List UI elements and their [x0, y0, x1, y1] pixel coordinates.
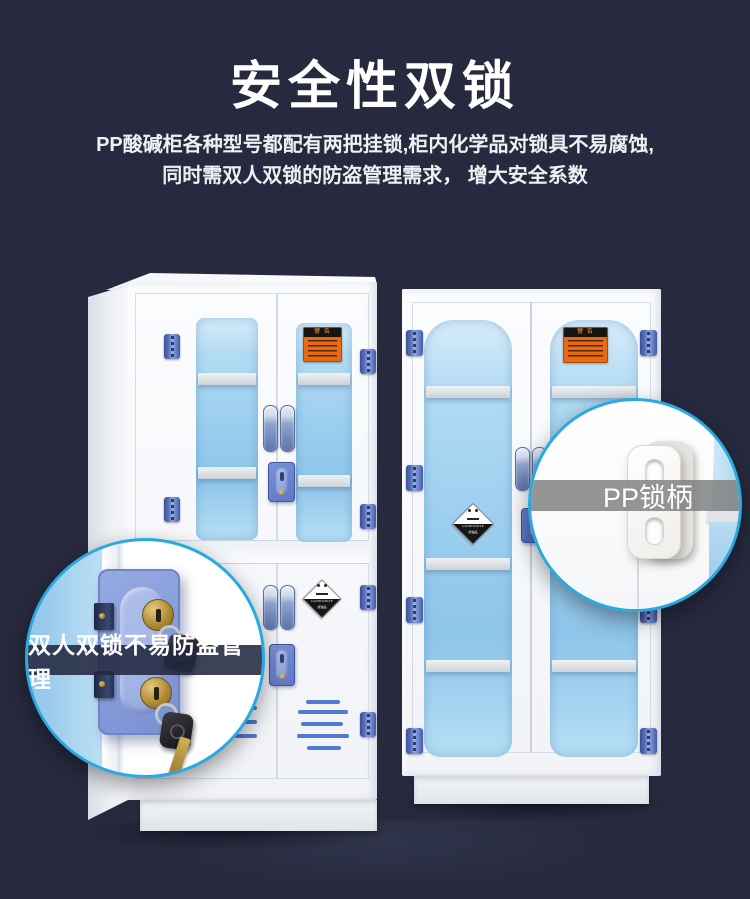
door-hinge: [640, 728, 657, 754]
corrosive-diamond-label: CORROSIVE 腐蚀品: [452, 503, 494, 545]
callout-pp-handle-band: PP锁柄: [531, 480, 739, 511]
callout-pp-handle: PP锁柄: [528, 398, 742, 612]
cabinet-shelf: [552, 660, 636, 672]
cabinet-shelf: [426, 386, 510, 398]
callout-double-lock: 双人双锁不易防盗管理: [25, 538, 265, 778]
callout-double-lock-label: 双人双锁不易防盗管理: [28, 626, 262, 694]
door-hinge: [406, 597, 423, 623]
door-seam: [412, 303, 413, 752]
warning-label-text-lines: [568, 340, 603, 358]
door-hinge: [640, 330, 657, 356]
callout-double-lock-band: 双人双锁不易防盗管理: [28, 645, 262, 675]
pp-handle-hole: [645, 517, 664, 545]
door-handle: [515, 447, 530, 491]
magnified-shelf: [707, 511, 742, 522]
corrosion-pictogram: [467, 512, 479, 520]
product-banner: 安全性双锁 PP酸碱柜各种型号都配有两把挂锁,柜内化学品对锁具不易腐蚀, 同时需…: [0, 0, 750, 899]
door-hinge: [406, 330, 423, 356]
cabinet-shelf: [426, 558, 510, 570]
warning-label-banner: 警 告: [564, 328, 607, 337]
cabinet-shelf: [426, 660, 510, 672]
callout-pp-handle-label: PP锁柄: [603, 476, 693, 515]
cabinet-shelf: [552, 386, 636, 398]
warning-label: 警 告: [563, 327, 608, 363]
door-hinge: [406, 728, 423, 754]
magnified-window-glass: [709, 522, 742, 586]
door-hinge: [406, 465, 423, 491]
cabinet-right-base: [414, 776, 649, 804]
